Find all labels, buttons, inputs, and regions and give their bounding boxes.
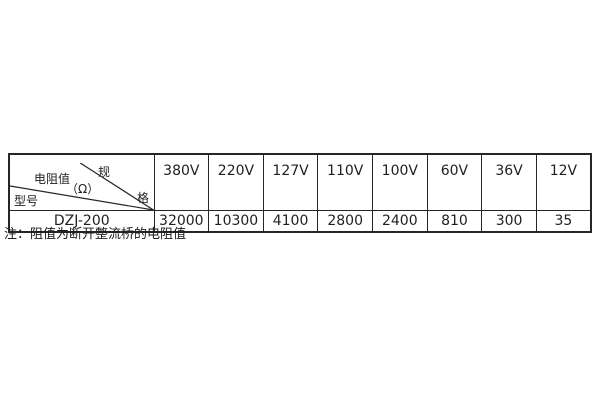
spec-label-char-top: 规 bbox=[98, 166, 110, 178]
voltage-header-60v: 60V bbox=[427, 154, 482, 211]
resistance-value-12v: 35 bbox=[536, 211, 591, 232]
voltage-header-220v: 220V bbox=[209, 154, 264, 211]
footnote: 注：阻值为断开整流桥的电阻值 bbox=[4, 227, 186, 243]
resistance-label: 电阻值 bbox=[34, 173, 70, 185]
voltage-header-12v: 12V bbox=[536, 154, 591, 211]
voltage-header-110v: 110V bbox=[318, 154, 373, 211]
resistance-value-60v: 810 bbox=[427, 211, 482, 232]
resistance-spec-table: 规 格 电阻值 （Ω） 型号 380V 220V 127V 110V 100V … bbox=[8, 153, 592, 233]
resistance-unit-label: （Ω） bbox=[66, 183, 99, 195]
resistance-value-100v: 2400 bbox=[373, 211, 428, 232]
header-row: 规 格 电阻值 （Ω） 型号 380V 220V 127V 110V 100V … bbox=[9, 154, 591, 211]
voltage-header-36v: 36V bbox=[482, 154, 537, 211]
model-label: 型号 bbox=[14, 195, 38, 207]
spec-label-char-bottom: 格 bbox=[137, 192, 149, 204]
resistance-value-220v: 10300 bbox=[209, 211, 264, 232]
page: { "page": { "background": "#ffffff", "bo… bbox=[0, 0, 600, 400]
resistance-value-36v: 300 bbox=[482, 211, 537, 232]
diagonal-corner-box: 规 格 电阻值 （Ω） 型号 bbox=[10, 163, 154, 210]
resistance-value-127v: 4100 bbox=[263, 211, 318, 232]
voltage-header-127v: 127V bbox=[263, 154, 318, 211]
corner-header-cell: 规 格 电阻值 （Ω） 型号 bbox=[9, 154, 154, 211]
resistance-value-110v: 2800 bbox=[318, 211, 373, 232]
voltage-header-100v: 100V bbox=[373, 154, 428, 211]
voltage-header-380v: 380V bbox=[154, 154, 209, 211]
